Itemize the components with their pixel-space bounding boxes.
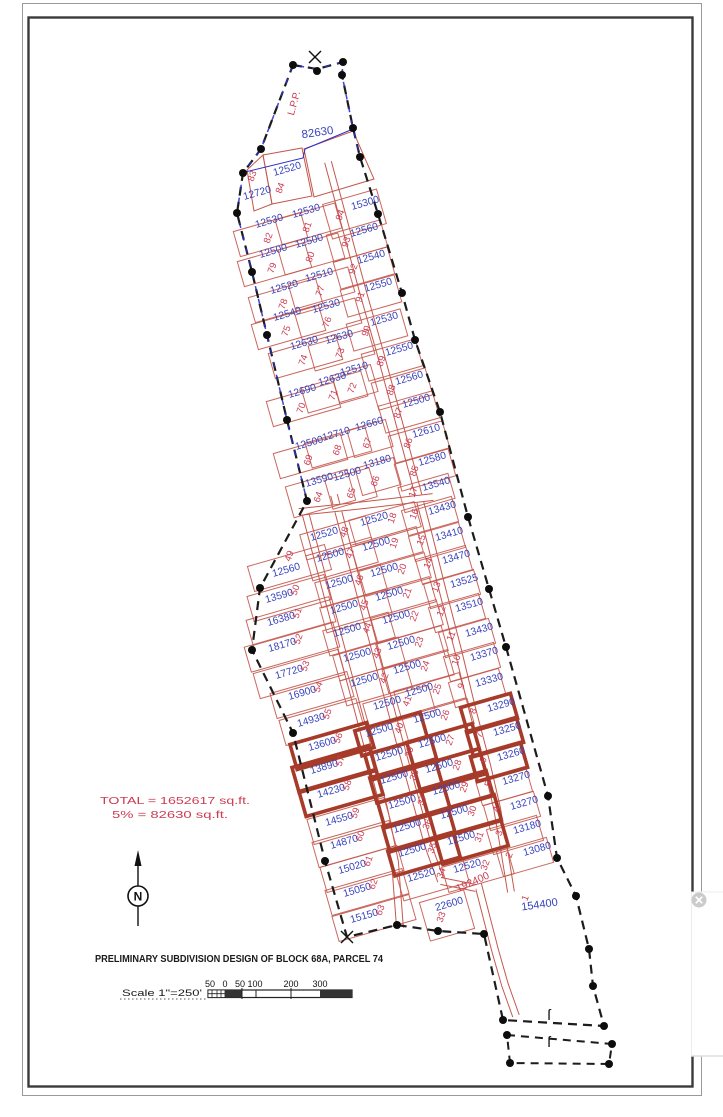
lot-area-label: 12660: [354, 415, 385, 434]
boundary-vertex-dot: [608, 1040, 616, 1048]
boundary-vertex-dot: [289, 729, 297, 737]
lot-number-label: 68: [331, 443, 345, 457]
lot-area-label: 12520: [309, 525, 340, 544]
boundary-vertex-dot: [263, 331, 271, 339]
boundary-vertex-dot: [502, 643, 510, 651]
lot-number-label: 54: [312, 680, 326, 694]
boundary-vertex-dot: [233, 209, 241, 217]
lot-area-label: 12500: [294, 232, 325, 251]
lot-number-label: 73: [334, 346, 348, 360]
lot-area-label: 12500: [329, 598, 360, 617]
scale-label: Scale 1"=250': [122, 988, 202, 999]
lot-area-label: 12500: [294, 434, 325, 453]
lot-area-label: 12500: [342, 646, 373, 665]
lot-area-label: 12710: [321, 425, 352, 444]
lot-number-label: 63: [374, 903, 388, 917]
lot-number-label: 65: [345, 486, 359, 500]
lot-number-label: 39: [403, 745, 417, 759]
boundary-vertex-dot: [605, 1060, 613, 1068]
lot-area-label: 12630: [324, 328, 355, 347]
lot-number-label: 70: [295, 401, 309, 415]
lot-area-label: 12500: [392, 658, 423, 677]
lot-number-label: 83: [246, 169, 260, 183]
lot-number-label: 24: [419, 659, 433, 673]
scale-bar: Scale 1"=250' 50 0 50 100 200 300: [120, 979, 352, 999]
north-arrow-head: [135, 850, 142, 866]
lot-area-label: 12540: [356, 248, 387, 267]
boundary-vertex-dot: [503, 1031, 511, 1039]
lot-number-label: 28: [451, 758, 465, 772]
lot-number-label: 37: [416, 793, 430, 807]
lot-area-label: 12560: [349, 221, 380, 240]
boundary-vertex-dot: [349, 124, 357, 132]
boundary-vertex-dot: [248, 268, 256, 276]
lot-number-label: 55: [321, 707, 335, 721]
lot-area-label: 12530: [311, 297, 342, 316]
lot-number-label: 26: [439, 708, 453, 722]
lot-area-label: 12580: [417, 450, 448, 469]
lot-area-label: 12530: [291, 202, 322, 221]
lot-area-label: 12520: [269, 278, 300, 297]
boundary-vertex-dot: [600, 1022, 608, 1030]
boundary-vertex-dot: [506, 1059, 514, 1067]
lot-number-label: 33: [435, 910, 449, 924]
scale-tick: 50: [205, 979, 215, 989]
plat-sheet: { "doc": { "title": "PRELIMINARY SUBDIVI…: [0, 0, 723, 1117]
lot-area-label: 12500: [379, 768, 410, 787]
boundary-vertex-dot: [257, 145, 265, 153]
close-icon[interactable]: [692, 893, 707, 908]
lot-number-label: 51: [291, 606, 305, 620]
lot-area-label: 12720: [242, 184, 273, 203]
lot-area-label: 12500: [397, 841, 428, 860]
boundary-vertex-dot: [248, 646, 256, 654]
lot-number-label: 42: [378, 671, 392, 685]
lot-number-label: 31: [473, 830, 487, 844]
lot-number-label: 30: [466, 804, 480, 818]
north-arrow: N: [128, 850, 148, 926]
viewer-overlay-panel: [692, 892, 723, 1056]
lot-area-label: 12500: [392, 817, 423, 836]
boundary-vertex-dot: [436, 408, 444, 416]
boundary-vertex-dot: [356, 153, 364, 161]
lot-number-label: 67: [361, 436, 375, 450]
boundary-vertex-dot: [544, 792, 552, 800]
lot-number-label: 46: [353, 573, 367, 587]
lot-number-label: 25: [431, 682, 445, 696]
lot-number-label: 34: [435, 866, 449, 880]
five-percent-note: 5% = 82630 sq.ft.: [112, 809, 228, 821]
lot-number-label: 75: [280, 324, 294, 338]
lot-number-label: 77: [314, 284, 328, 298]
lot-area-label: 12690: [287, 382, 318, 401]
lot-number-label: 50: [289, 583, 303, 597]
lot-number-label: 60: [354, 829, 368, 843]
north-letter: N: [134, 890, 143, 904]
boundary-vertex-dot: [480, 930, 488, 938]
lot-area-label: 12520: [272, 160, 303, 179]
lot-number-label: 72: [346, 381, 360, 395]
boundary-vertex-dot: [339, 58, 347, 66]
lot-area-label: 12500: [412, 707, 443, 726]
lot-number-label: 82: [262, 231, 276, 245]
lot-number-label: 21: [401, 586, 415, 600]
scale-tick: 0: [222, 979, 227, 989]
plat-drawing: ſſ 1252084127208315300941253081125308212…: [0, 0, 723, 1117]
lot-number-label: 45: [358, 598, 372, 612]
boundary-vertex-dot: [398, 289, 406, 297]
lot-number-label: 84: [274, 181, 288, 195]
lot-number-label: 81: [301, 220, 315, 234]
lot-number-label: 47: [344, 546, 358, 560]
boundary-vertex-dot: [321, 857, 329, 865]
lot-number-label: 43: [371, 646, 385, 660]
lot-area-label: 12500: [349, 671, 380, 690]
lot-area-label: 12630: [317, 370, 348, 389]
boundary-vertex-dot: [589, 982, 597, 990]
lot-number-label: 56: [332, 731, 346, 745]
sheet-inner-border: [29, 18, 693, 1087]
boundary-vertex-dot: [289, 61, 297, 69]
lot-number-label: 48: [338, 525, 352, 539]
lot-number-label: 29: [458, 780, 472, 794]
boundary-vertex-dot: [485, 585, 493, 593]
boundary-vertex-dot: [499, 1016, 507, 1024]
lot-number-label: 58: [341, 778, 355, 792]
boundary-vertex-dot: [239, 169, 247, 177]
lot-area-label: 12510: [304, 266, 335, 285]
lot-area-label: 12500: [439, 803, 470, 822]
scale-tick: 100: [247, 979, 262, 989]
lot-number-label: 53: [299, 659, 313, 673]
boundary-vertex-dot: [553, 854, 561, 862]
boundary-vertex-dot: [338, 71, 346, 79]
lot-area-label: 12500: [374, 585, 405, 604]
boundary-vertex-dot: [313, 67, 321, 75]
boundary-vertex-dot: [434, 927, 442, 935]
lot-area-label: 12550: [384, 340, 415, 359]
scale-tick: 50: [235, 979, 245, 989]
lot-area-label: 12500: [381, 608, 412, 627]
lot-area-label: 12550: [363, 276, 394, 295]
lpp-label: L.P.P.: [286, 90, 303, 117]
sliver-lot-outline: [304, 131, 374, 197]
lot-number-label: 22: [408, 609, 422, 623]
lot-area-label: 12560: [271, 561, 302, 580]
boundary-vertex-dot: [303, 497, 311, 505]
lot-number-label: 76: [321, 315, 335, 329]
boundary-vertex-dot: [256, 584, 264, 592]
lot-area-label: 12520: [406, 866, 437, 885]
lot-area-label: 13590: [304, 471, 335, 490]
lot-number-label: 59: [349, 806, 363, 820]
lot-area-label: 12500: [361, 535, 392, 554]
lot-area-label: 13180: [362, 453, 393, 472]
scale-tick: 300: [312, 979, 327, 989]
lot-area-label: 12500: [374, 745, 405, 764]
lot-area-label: 12560: [394, 369, 425, 388]
lot-number-label: 61: [362, 854, 376, 868]
lot-number-label: 79: [266, 261, 280, 275]
lot-labels: 1252084127208315300941253081125308212560…: [242, 160, 559, 926]
lot-area-label: 12500: [387, 793, 418, 812]
lot-number-label: 64: [312, 490, 326, 504]
detached-parcel-boundary: [507, 1035, 612, 1064]
lot-area-label: 12520: [359, 510, 390, 529]
lot-number-label: 80: [304, 250, 318, 264]
boundary-vertex-dot: [393, 921, 401, 929]
lot-area-label: 12500: [258, 242, 289, 261]
lot-area-label: 12530: [254, 212, 285, 231]
boundary-vertex-dot: [585, 945, 593, 953]
lot-area-label: 12500: [369, 561, 400, 580]
lot-number-label: 18: [386, 511, 400, 525]
lot-area-label: 13540: [421, 475, 452, 494]
section-tie-mark: ſ: [547, 1007, 551, 1024]
boundary-vertex-dot: [283, 416, 291, 424]
lot-number-label: 38: [408, 768, 422, 782]
boundary-vertex-dot: [374, 210, 382, 218]
lot-number-label: 20: [396, 562, 410, 576]
lot-number-label: 62: [367, 877, 381, 891]
sheet-title: PRELIMINARY SUBDIVISION DESIGN OF BLOCK …: [95, 953, 383, 965]
boundary-vertex-dot: [572, 892, 580, 900]
lot-number-label: 69: [302, 453, 316, 467]
lot-area-label: 12530: [369, 310, 400, 329]
lot-number-label: 66: [369, 474, 383, 488]
lot-area-label: 12500: [401, 392, 432, 411]
section-tie-mark: ſ: [547, 1034, 551, 1051]
total-area-note: TOTAL = 1652617 sq.ft.: [100, 795, 250, 807]
lot-number-label: 19: [388, 536, 402, 550]
lot-number-label: 49: [283, 549, 297, 563]
lot-number-label: 74: [297, 353, 311, 367]
lot-number-label: 27: [444, 733, 458, 747]
scale-tick: 200: [283, 979, 298, 989]
lot-area-label: 12630: [289, 334, 320, 353]
lot-number-label: 52: [292, 632, 306, 646]
lot-area-label: 12500: [315, 546, 346, 565]
lot-number-label: 40: [393, 721, 407, 735]
sliver-lots: [247, 131, 374, 211]
lot-number-label: 23: [413, 635, 427, 649]
boundary-vertex-dot: [464, 513, 472, 521]
